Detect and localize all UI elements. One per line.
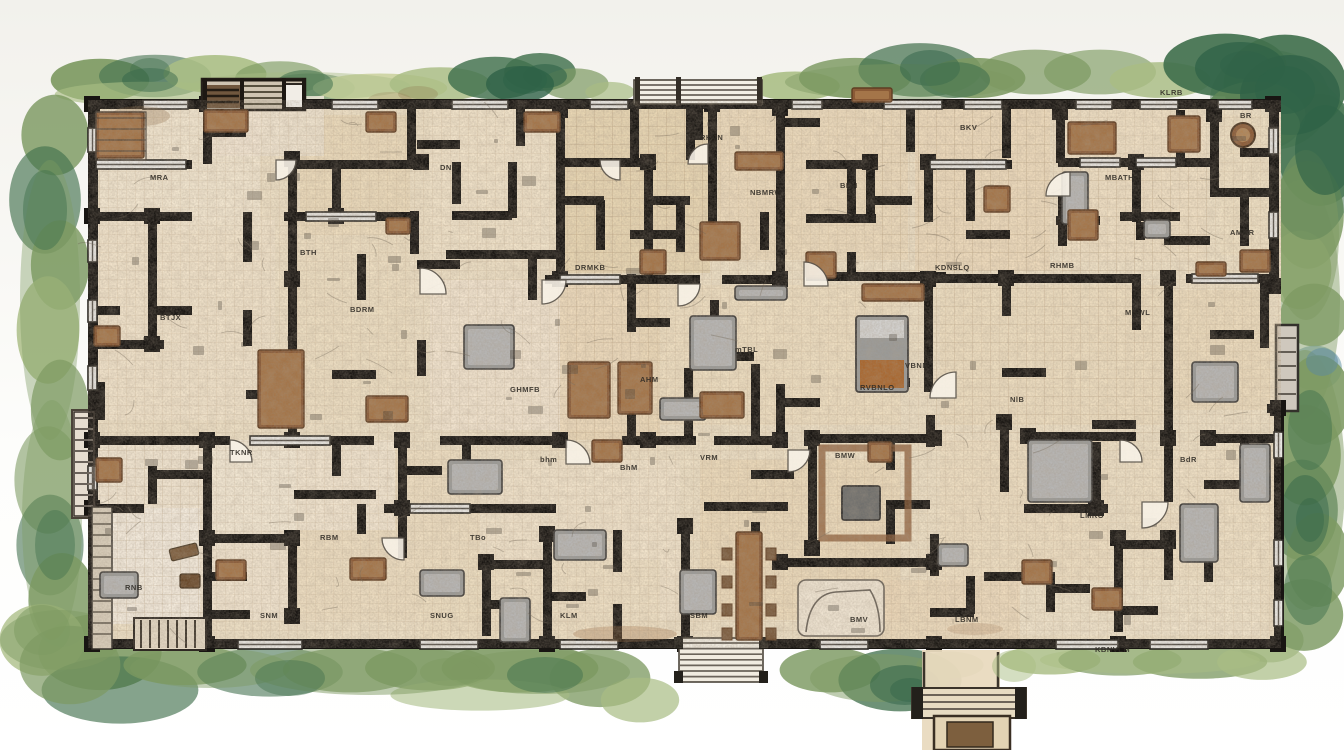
svg-text:mTBL: mTBL <box>735 345 758 354</box>
svg-text:RBM: RBM <box>320 533 339 542</box>
svg-text:DRMKB: DRMKB <box>575 263 605 272</box>
svg-text:KLM: KLM <box>560 611 578 620</box>
svg-text:NlB: NlB <box>1010 395 1025 404</box>
svg-text:BMV: BMV <box>850 615 868 624</box>
svg-text:BKV: BKV <box>960 123 977 132</box>
svg-text:BTJX: BTJX <box>160 313 181 322</box>
svg-text:VRM: VRM <box>700 453 718 462</box>
svg-text:BTH: BTH <box>300 248 317 257</box>
svg-text:RKVN: RKVN <box>700 133 723 142</box>
svg-text:KDNSLQ: KDNSLQ <box>935 263 970 272</box>
svg-text:RVBNLO: RVBNLO <box>860 383 895 392</box>
svg-text:TBo: TBo <box>470 533 486 542</box>
svg-text:RNB: RNB <box>125 583 143 592</box>
svg-text:BLM: BLM <box>840 181 858 190</box>
svg-text:BMW: BMW <box>835 451 856 460</box>
svg-text:SNM: SNM <box>260 611 278 620</box>
svg-text:LMRO: LMRO <box>1080 511 1104 520</box>
svg-text:NBMRW: NBMRW <box>750 188 782 197</box>
svg-text:KBNVLM: KBNVLM <box>1095 645 1130 654</box>
svg-text:VBNM: VBNM <box>905 361 929 370</box>
svg-text:AHM: AHM <box>640 375 659 384</box>
svg-text:BDRM: BDRM <box>350 305 375 314</box>
svg-text:BhM: BhM <box>620 463 638 472</box>
svg-text:RHMB: RHMB <box>1050 261 1075 270</box>
svg-text:KLRB: KLRB <box>1160 88 1183 97</box>
svg-text:MRA: MRA <box>150 173 169 182</box>
svg-text:TKNR: TKNR <box>230 448 253 457</box>
svg-text:GHMFB: GHMFB <box>510 385 540 394</box>
svg-text:BdR: BdR <box>1180 455 1197 464</box>
svg-text:SBM: SBM <box>690 611 708 620</box>
svg-text:LBNM: LBNM <box>955 615 979 624</box>
svg-text:BR: BR <box>1240 111 1252 120</box>
svg-text:DNR: DNR <box>440 163 458 172</box>
svg-text:SNUG: SNUG <box>430 611 454 620</box>
svg-text:bhm: bhm <box>540 455 557 464</box>
svg-text:MBATH: MBATH <box>1105 173 1134 182</box>
svg-text:AMKR: AMKR <box>1230 228 1255 237</box>
svg-text:MBWL: MBWL <box>1125 308 1150 317</box>
